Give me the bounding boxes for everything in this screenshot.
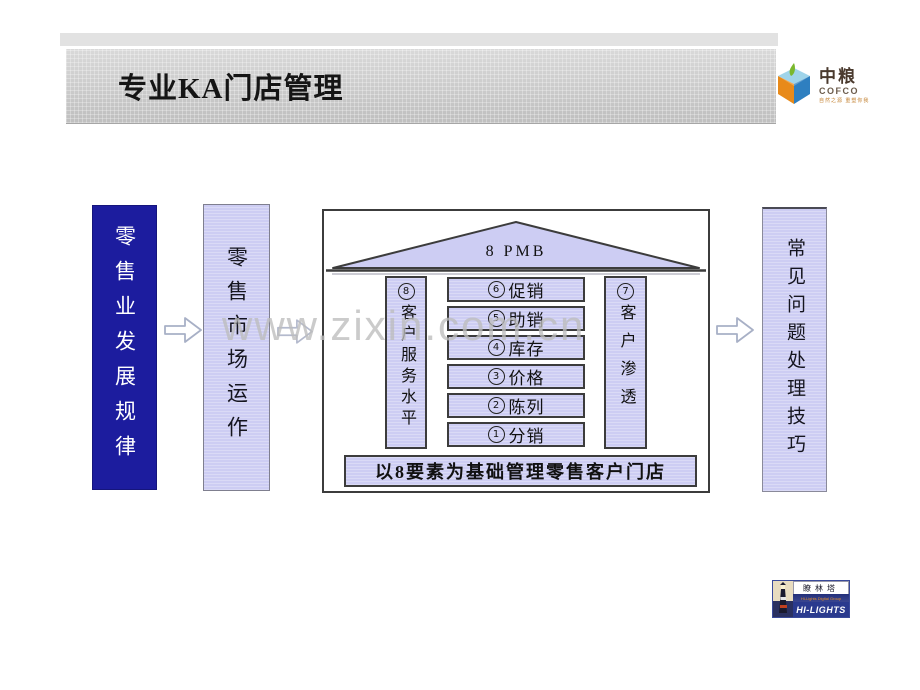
circled-number: 4 xyxy=(488,339,505,356)
cofco-name-en: COFCO xyxy=(819,87,869,96)
circled-number: 7 xyxy=(617,283,634,300)
page-title: 专业KA门店管理 xyxy=(118,65,344,107)
diagram-base-bar: 以8要素为基础管理零售客户门店 xyxy=(344,455,697,487)
flow-box1-label: 零售业发展规律 xyxy=(110,225,140,470)
stack-label: 分销 xyxy=(509,422,545,447)
hilights-logo: 瞭林塔 Hi-Lights Digital Group HI-LIGHTS xyxy=(772,580,850,618)
flow-arrow-icon xyxy=(164,316,202,344)
stack-label: 库存 xyxy=(509,335,545,360)
title-band: 专业KA门店管理 xyxy=(66,49,776,124)
lighthouse-icon xyxy=(773,581,793,617)
slide: 专业KA门店管理 中粮 COFCO 自然之源 重塑你我 零售业发展规律 零售 xyxy=(0,0,920,690)
stack-row-display: 2 陈列 xyxy=(447,393,585,418)
flow-box2-label: 零售市场运作 xyxy=(222,246,252,450)
hilights-name-cn: 瞭林塔 xyxy=(793,581,849,594)
stack-label: 价格 xyxy=(509,364,545,389)
circled-number: 8 xyxy=(398,283,415,300)
stack-label: 助销 xyxy=(509,306,545,331)
house-diagram: 8 PMB 8 客户服务水平 6 促销 5 助销 4 库存 3 价格 xyxy=(322,209,710,493)
stack-row-price: 3 价格 xyxy=(447,364,585,389)
cofco-cube-icon xyxy=(775,62,813,111)
circled-number: 1 xyxy=(488,426,505,443)
circled-number: 2 xyxy=(488,397,505,414)
hilights-subtitle: Hi-Lights Digital Group xyxy=(793,594,849,602)
flow-arrow-icon xyxy=(716,316,754,344)
hilights-name-en: HI-LIGHTS xyxy=(793,602,849,617)
stack-label: 促销 xyxy=(509,277,545,302)
flow-box3-label: 常见问题处理技巧 xyxy=(781,238,808,462)
roof-label: 8 PMB xyxy=(324,243,708,261)
circled-number: 5 xyxy=(488,310,505,327)
stack-row-distribution: 1 分销 xyxy=(447,422,585,447)
flow-box-retail-development: 零售业发展规律 xyxy=(92,205,157,490)
pillar-customer-penetration: 7 客户渗透 xyxy=(604,276,647,449)
pillar-customer-service: 8 客户服务水平 xyxy=(385,276,427,449)
stack-row-inventory: 4 库存 xyxy=(447,335,585,360)
flow-arrow-icon xyxy=(277,318,315,346)
title-band-shadow xyxy=(60,33,778,46)
cofco-logo: 中粮 COFCO 自然之源 重塑你我 xyxy=(775,58,905,114)
cofco-name-cn: 中粮 xyxy=(819,68,869,85)
circled-number: 6 xyxy=(488,281,505,298)
hilights-text-block: 瞭林塔 Hi-Lights Digital Group HI-LIGHTS xyxy=(793,581,849,617)
pillar-left-label: 客户服务水平 xyxy=(394,304,418,430)
cofco-wordmark: 中粮 COFCO 自然之源 重塑你我 xyxy=(819,68,869,104)
stack-label: 陈列 xyxy=(509,393,545,418)
element-stack: 6 促销 5 助销 4 库存 3 价格 2 陈列 1 分销 xyxy=(447,277,585,447)
stack-row-promotion: 6 促销 xyxy=(447,277,585,302)
base-bar-label: 以8要素为基础管理零售客户门店 xyxy=(375,458,666,484)
stack-row-merchandising: 5 助销 xyxy=(447,306,585,331)
flow-box-problem-handling: 常见问题处理技巧 xyxy=(762,207,827,492)
pillar-right-label: 客户渗透 xyxy=(614,304,638,416)
cofco-tagline: 自然之源 重塑你我 xyxy=(819,99,869,104)
flow-box-retail-market: 零售市场运作 xyxy=(203,204,270,491)
circled-number: 3 xyxy=(488,368,505,385)
